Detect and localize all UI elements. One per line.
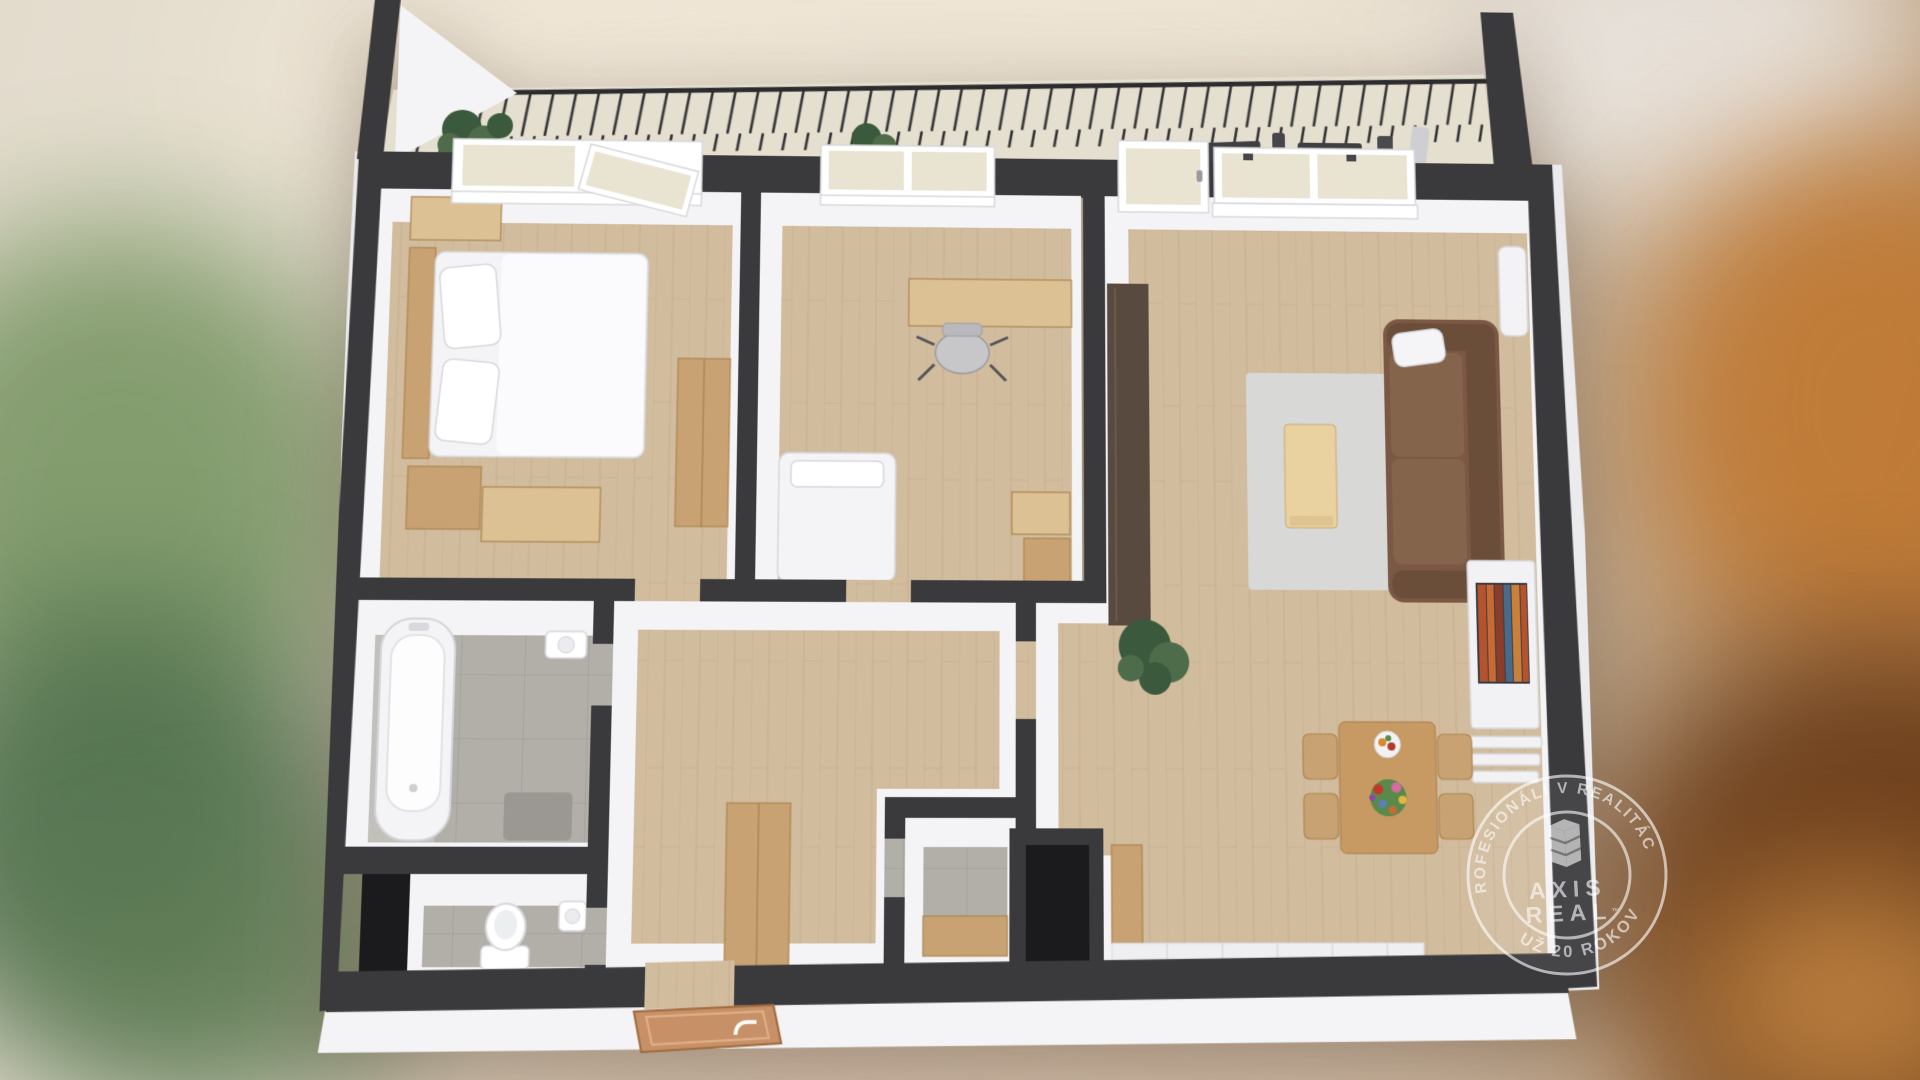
single-bed [777,453,895,582]
dining-chair [1303,734,1338,779]
foot-dresser [481,487,601,542]
building-logo-icon [1549,818,1581,868]
balcony-door-and-windows [1118,141,1418,219]
room-bedroom [352,138,742,602]
floor-plan [318,0,1602,1055]
living-door-opening [1016,641,1036,719]
sofa-cushion [1389,352,1464,457]
foot-dresser [406,466,482,529]
corner-sink [559,901,587,931]
kitchen-base-cabinets [923,916,1007,956]
window-sill [1213,203,1418,219]
bathroom-door-opening [591,644,613,706]
shelving-unit [1024,538,1070,583]
shelf-tier [1469,754,1540,765]
duvet [496,254,646,455]
fruit-bowl [1374,731,1401,758]
room-kitchen [904,818,1015,982]
sofa-cushion [1392,459,1468,565]
bathtub [374,618,456,840]
faucet [408,623,429,631]
washbasin [545,631,587,658]
study-door-opening [846,580,911,603]
wall-bath-wc [341,847,608,874]
tall-wardrobe [1107,284,1151,626]
entry-door [633,1005,782,1052]
shelf-tier [1465,736,1541,747]
desk [909,279,1072,327]
pillow [439,263,501,349]
watermark-stamp: PROFESIONÁLI V REALITÁCH UŽ 20 ROKOV AXI… [1460,768,1674,982]
scene: PROFESIONÁLI V REALITÁCH UŽ 20 ROKOV AXI… [0,0,1920,1080]
floor-plan-svg [318,0,1602,1055]
stamp-trademark: ™ [1611,906,1621,916]
radiator [1498,247,1528,336]
room-study [753,144,1083,603]
pillow [434,358,500,445]
dining-chair [1304,794,1339,839]
wall-kitchen-top [885,797,1036,818]
tall-cabinet [1112,845,1143,943]
throw-pillow [1391,328,1447,368]
door-handle [1197,170,1203,182]
wall-study-living [1083,196,1106,603]
study-window [820,145,994,207]
stamp-brand-real: REAL [1525,898,1613,928]
entry-door-opening [644,960,734,1009]
kitchen-door-opening [884,839,905,898]
bedroom-door-opening [635,579,701,602]
room-bathroom [342,600,608,849]
pillow [791,461,884,488]
coffee-table [1284,424,1337,528]
wall-rooms-bottom [352,577,1106,603]
wc-door-opening [585,908,607,965]
shelving-unit [1012,492,1070,534]
bath-mat [503,792,573,840]
